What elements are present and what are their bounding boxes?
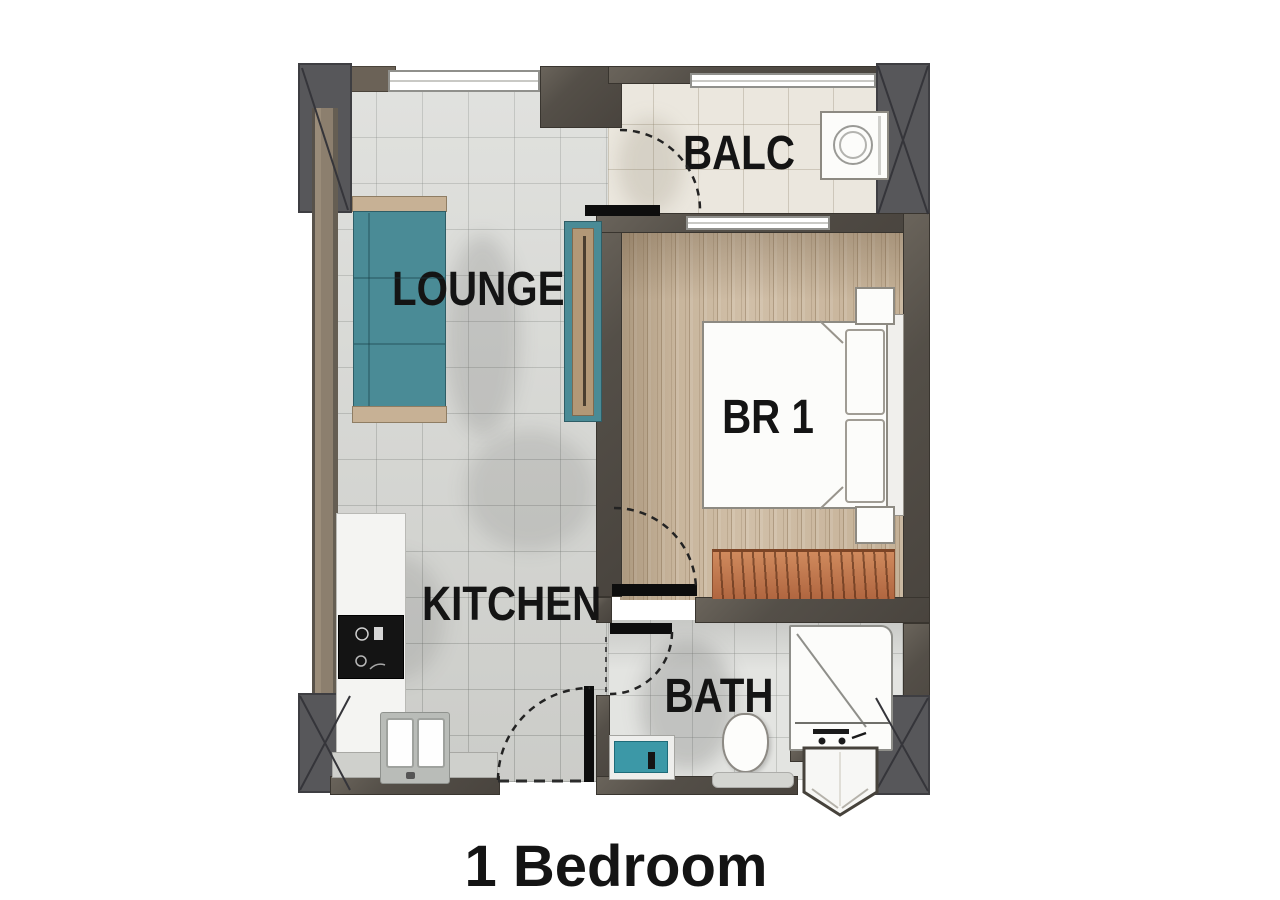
bedroom-window: [686, 216, 830, 230]
plan-title: 1 Bedroom: [0, 833, 1232, 900]
lounge-window: [388, 70, 540, 92]
bedroom-label: BR 1: [705, 390, 831, 446]
entry-door-leaf: [584, 686, 594, 782]
shower: [789, 625, 893, 751]
washing-machine-drum-inner: [839, 131, 867, 159]
kitchen-sink-basin: [417, 718, 445, 768]
kitchen-sink-faucet: [406, 772, 415, 779]
nightstand: [855, 287, 895, 325]
washing-machine-door-line: [878, 116, 881, 175]
bed-pillow: [845, 419, 885, 503]
balcony-railing: [690, 73, 876, 88]
floorplan: LOUNGE BALC BR 1 KITCHEN BATH: [0, 0, 1280, 900]
vanity-faucet: [648, 752, 655, 769]
cooktop: [338, 615, 404, 679]
lounge-label: LOUNGE: [392, 262, 560, 318]
bed-pillow: [845, 329, 885, 415]
bath-door-leaf: [610, 623, 672, 634]
nightstand: [855, 506, 895, 544]
kitchen-sink-basin: [386, 718, 414, 768]
tv-screen: [583, 236, 586, 406]
balcony-door-threshold: [585, 205, 660, 216]
wall-left: [312, 108, 338, 700]
balcony-label: BALC: [676, 126, 802, 182]
bedroom-door-leaf: [612, 584, 697, 596]
kitchen-label: KITCHEN: [422, 577, 590, 633]
wardrobe: [712, 549, 895, 599]
bed-headboard: [886, 314, 904, 516]
toilet-ledge: [712, 772, 794, 788]
vanity-basin: [614, 741, 668, 773]
sofa-armrest-bottom: [352, 406, 447, 423]
wall-bedroom-bottom-b: [695, 597, 930, 623]
wall-bedroom-right: [903, 213, 930, 623]
sofa-armrest-top: [352, 196, 447, 212]
bath-label: BATH: [656, 669, 782, 725]
